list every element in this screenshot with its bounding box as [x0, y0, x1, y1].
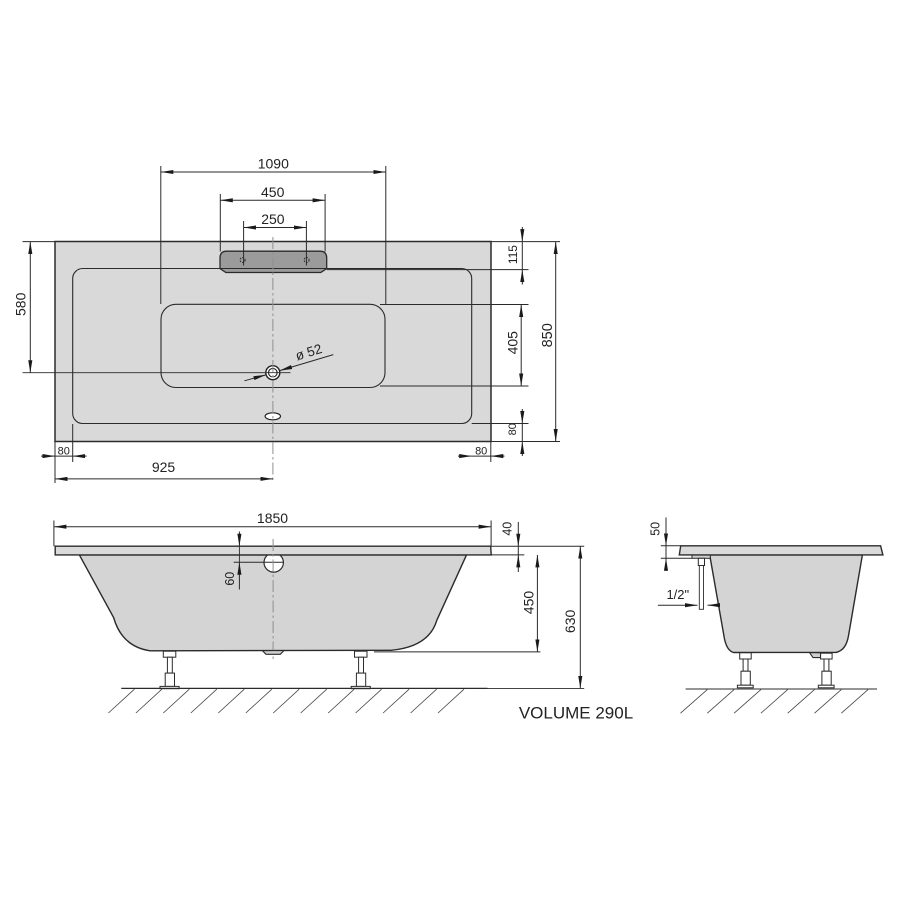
- svg-text:40: 40: [501, 522, 515, 536]
- svg-text:80: 80: [475, 445, 487, 457]
- svg-text:580: 580: [13, 292, 29, 316]
- svg-text:80: 80: [507, 423, 519, 435]
- svg-text:80: 80: [58, 445, 70, 457]
- svg-text:VOLUME 290L: VOLUME 290L: [519, 704, 633, 723]
- svg-text:250: 250: [261, 211, 285, 227]
- svg-text:115: 115: [506, 245, 520, 264]
- svg-text:850: 850: [540, 323, 556, 347]
- svg-text:1/2": 1/2": [666, 587, 689, 602]
- svg-text:50: 50: [649, 522, 663, 536]
- svg-text:1850: 1850: [257, 510, 288, 526]
- svg-text:1090: 1090: [258, 156, 289, 172]
- svg-text:925: 925: [152, 459, 176, 475]
- svg-text:60: 60: [223, 572, 237, 586]
- svg-text:405: 405: [505, 331, 521, 355]
- svg-text:450: 450: [261, 184, 285, 200]
- svg-text:450: 450: [520, 591, 536, 615]
- svg-text:630: 630: [562, 610, 578, 634]
